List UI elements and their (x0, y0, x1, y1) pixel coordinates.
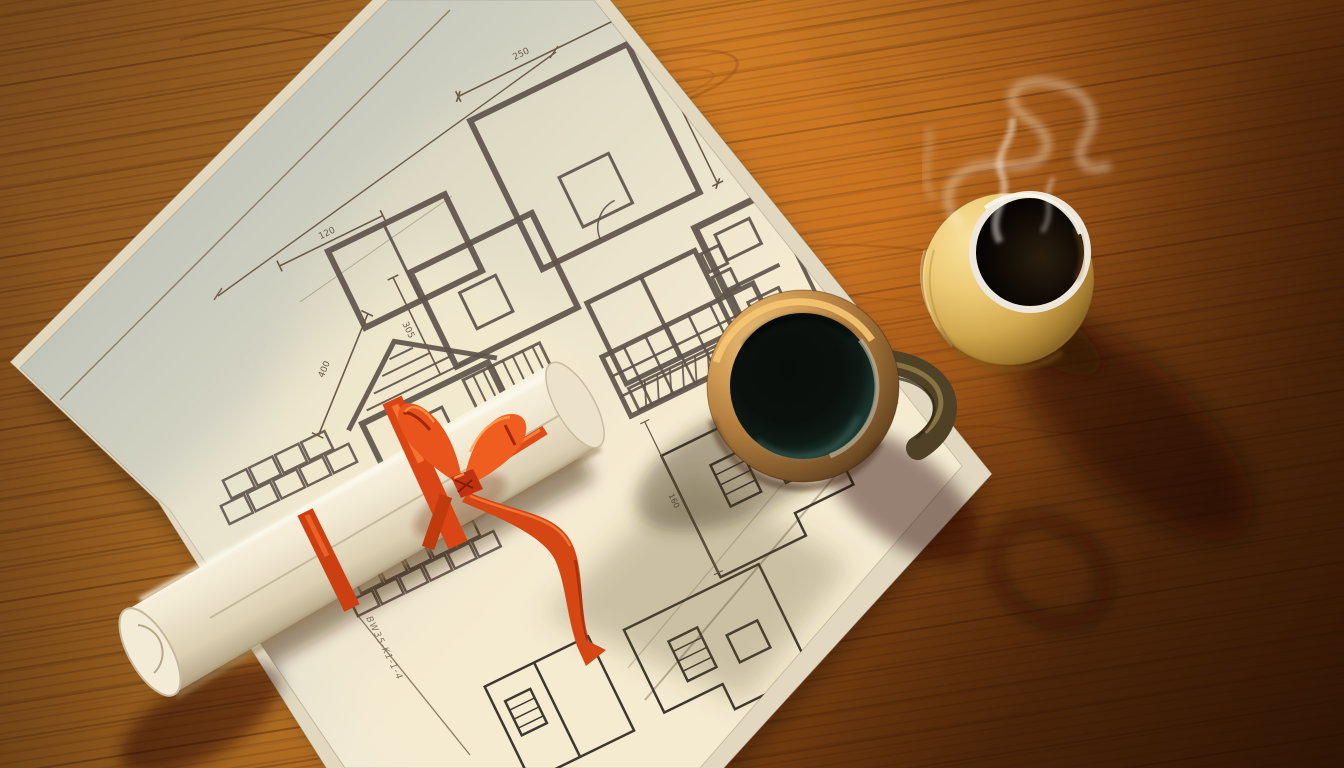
photo-scene: 250 205 400 305 120 160 BW35-K1-1-4 (0, 0, 1344, 768)
scene-canvas: 250 205 400 305 120 160 BW35-K1-1-4 (0, 0, 1344, 768)
